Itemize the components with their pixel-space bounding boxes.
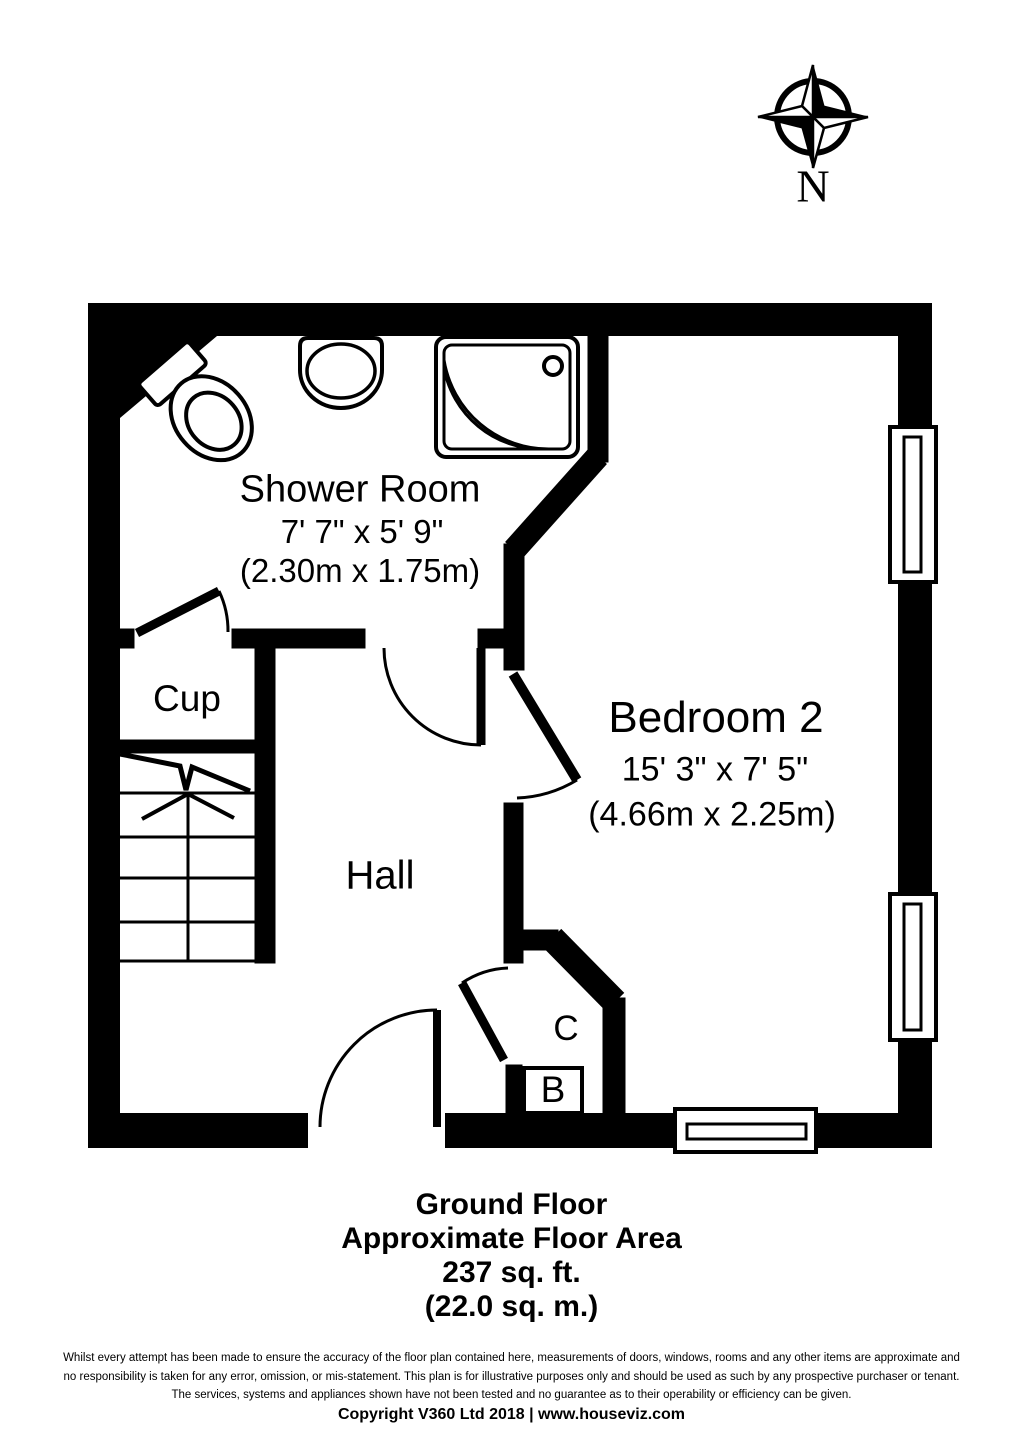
bedroom-door xyxy=(513,674,577,798)
disclaimer: Whilst every attempt has been made to en… xyxy=(0,1349,1023,1405)
floor-plan-page: N xyxy=(0,0,1023,1448)
windows xyxy=(675,427,936,1152)
compass-icon: N xyxy=(758,65,868,212)
shower-drain-icon xyxy=(544,357,562,375)
bedroom2-dimensions-metric: (4.66m x 2.25m) xyxy=(588,796,836,835)
stairs-icon xyxy=(120,754,255,961)
shower-tray-icon xyxy=(436,337,578,457)
disclaimer-line-1: Whilst every attempt has been made to en… xyxy=(0,1349,1023,1368)
front-door-opening xyxy=(308,1108,445,1153)
shower-room-dimensions-imperial: 7' 7" x 5' 9" xyxy=(281,513,444,551)
window-icon xyxy=(890,894,936,1040)
compass-north-label: N xyxy=(796,161,829,212)
floor-name: Ground Floor xyxy=(0,1188,1023,1222)
copyright-line: Copyright V360 Ltd 2018 | www.houseviz.c… xyxy=(0,1406,1023,1424)
closet-label: C xyxy=(553,1009,578,1049)
floor-area-metric: (22.0 sq. m.) xyxy=(0,1290,1023,1324)
bedroom2-label: Bedroom 2 xyxy=(608,693,823,743)
window-icon xyxy=(675,1109,816,1152)
bedroom2-dimensions-imperial: 15' 3" x 7' 5" xyxy=(622,751,808,790)
floor-area-label: Approximate Floor Area xyxy=(0,1222,1023,1256)
window-icon xyxy=(890,427,936,582)
floor-area-imperial: 237 sq. ft. xyxy=(0,1256,1023,1290)
shower-room-door xyxy=(384,648,481,745)
cupboard-label: Cup xyxy=(153,678,221,720)
disclaimer-line-2: no responsibility is taken for any error… xyxy=(0,1368,1023,1387)
disclaimer-line-3: The services, systems and appliances sho… xyxy=(0,1386,1023,1405)
shower-room-label: Shower Room xyxy=(240,469,481,512)
shower-room-dimensions-metric: (2.30m x 1.75m) xyxy=(240,552,480,590)
closet-door xyxy=(462,968,508,1060)
sink-icon xyxy=(300,338,382,408)
boiler-label: B xyxy=(541,1069,566,1111)
floor-summary: Ground Floor Approximate Floor Area 237 … xyxy=(0,1188,1023,1324)
hall-label: Hall xyxy=(346,854,415,899)
cupboard-door xyxy=(137,591,228,633)
